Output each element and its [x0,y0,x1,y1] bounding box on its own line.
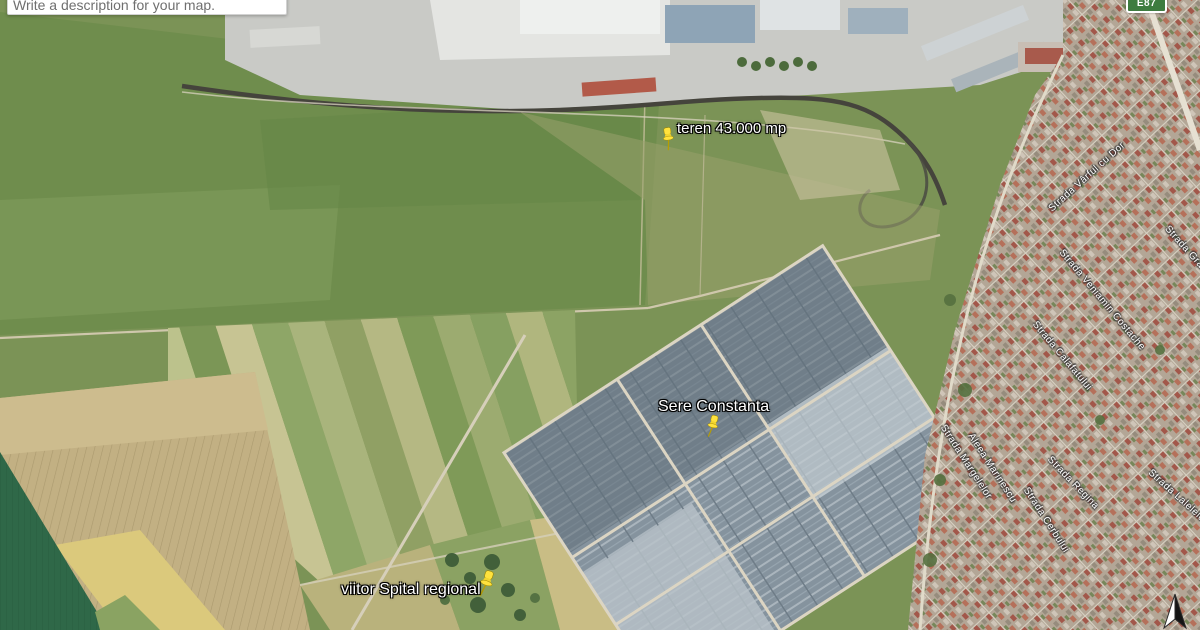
map-pin-teren[interactable]: teren 43.000 mp [660,126,677,152]
map-pin-sere[interactable]: Sere Constanta [703,414,722,439]
route-shield-e87: E87 [1126,0,1167,13]
map-canvas[interactable]: Write a description for your map. E87 St… [0,0,1200,630]
map-description-placeholder: Write a description for your map. [13,0,215,13]
map-description-input[interactable]: Write a description for your map. [7,0,287,15]
pushpin-icon [658,125,678,153]
pushpin-icon [700,412,724,441]
pin-label-spital: viitor Spital regional [341,581,481,599]
north-arrow-icon[interactable] [1158,592,1192,630]
pin-label-teren: teren 43.000 mp [677,120,786,137]
satellite-imagery [0,0,1200,630]
map-pin-spital[interactable]: viitor Spital regional [476,569,496,599]
pin-label-sere: Sere Constanta [658,398,769,416]
